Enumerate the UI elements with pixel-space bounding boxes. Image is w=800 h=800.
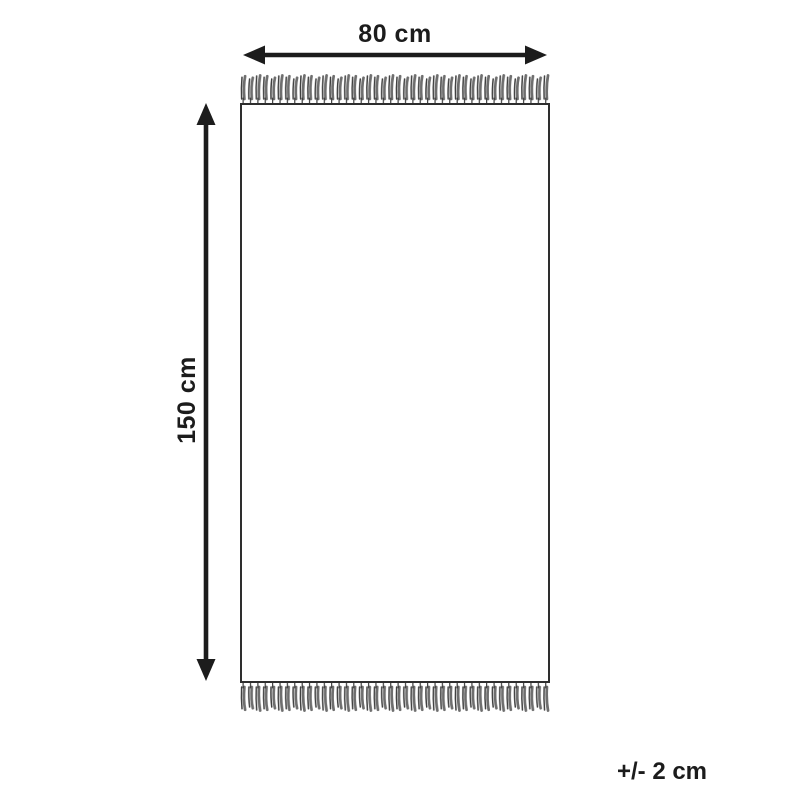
width-dimension-arrow-icon <box>240 44 550 66</box>
height-dimension-arrow-icon <box>195 101 217 683</box>
rug-outline <box>240 103 550 683</box>
rug-bottom-fringe <box>240 682 550 712</box>
rug-top-fringe <box>240 74 550 104</box>
product-dimension-diagram: 80 cm 150 cm <box>0 0 800 800</box>
tolerance-label: +/- 2 cm <box>600 759 724 785</box>
